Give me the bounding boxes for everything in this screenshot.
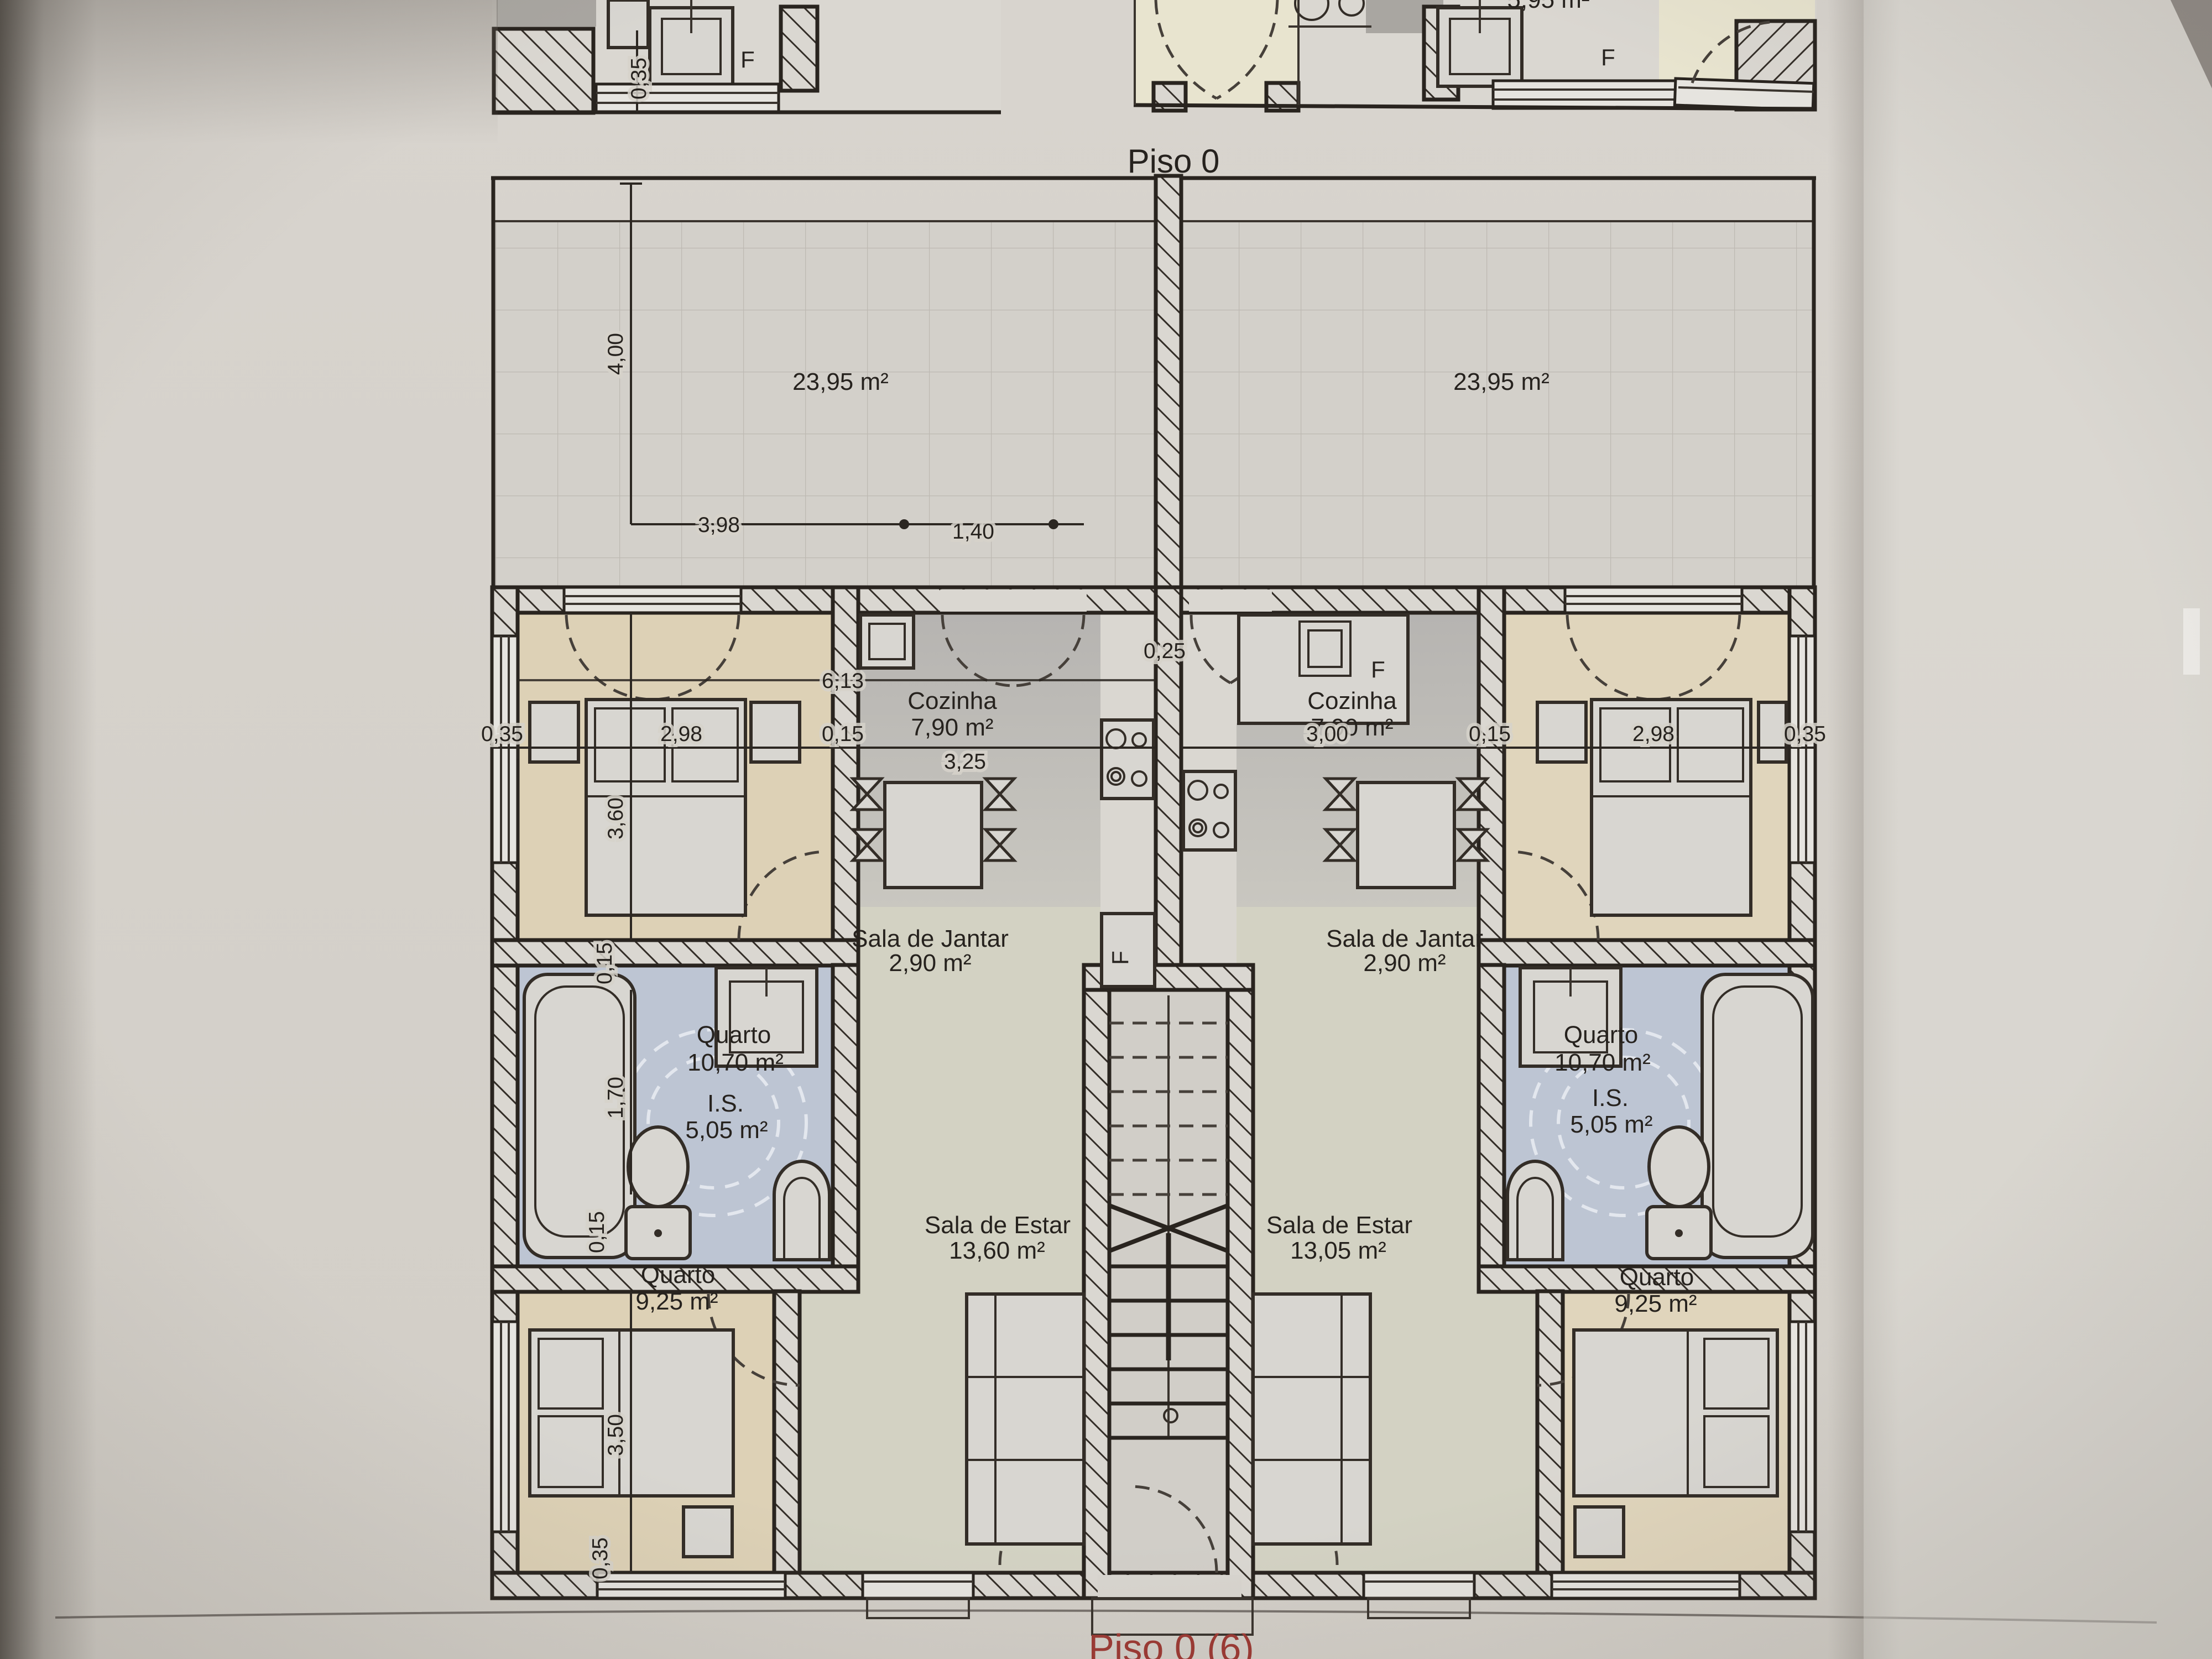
floor-plan-drawing: F F 0,35 5,95 m² Piso 0 23,95 m² 23,95 m… xyxy=(0,0,2212,1659)
photo-effects xyxy=(0,0,2212,1659)
floor-plan-photo: F F 0,35 5,95 m² Piso 0 23,95 m² 23,95 m… xyxy=(0,0,2212,1659)
